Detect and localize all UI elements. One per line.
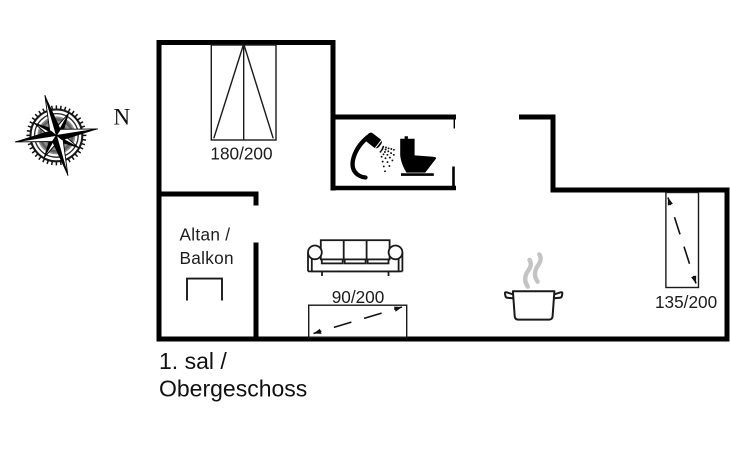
svg-text:Balkon: Balkon — [180, 248, 234, 268]
svg-text:Altan /: Altan / — [180, 225, 231, 245]
svg-text:180/200: 180/200 — [210, 144, 272, 164]
svg-text:Obergeschoss: Obergeschoss — [159, 376, 307, 402]
svg-text:1. sal /: 1. sal / — [159, 348, 227, 374]
svg-text:135/200: 135/200 — [655, 292, 717, 312]
svg-text:90/200: 90/200 — [332, 287, 385, 307]
svg-text:N: N — [114, 105, 131, 130]
